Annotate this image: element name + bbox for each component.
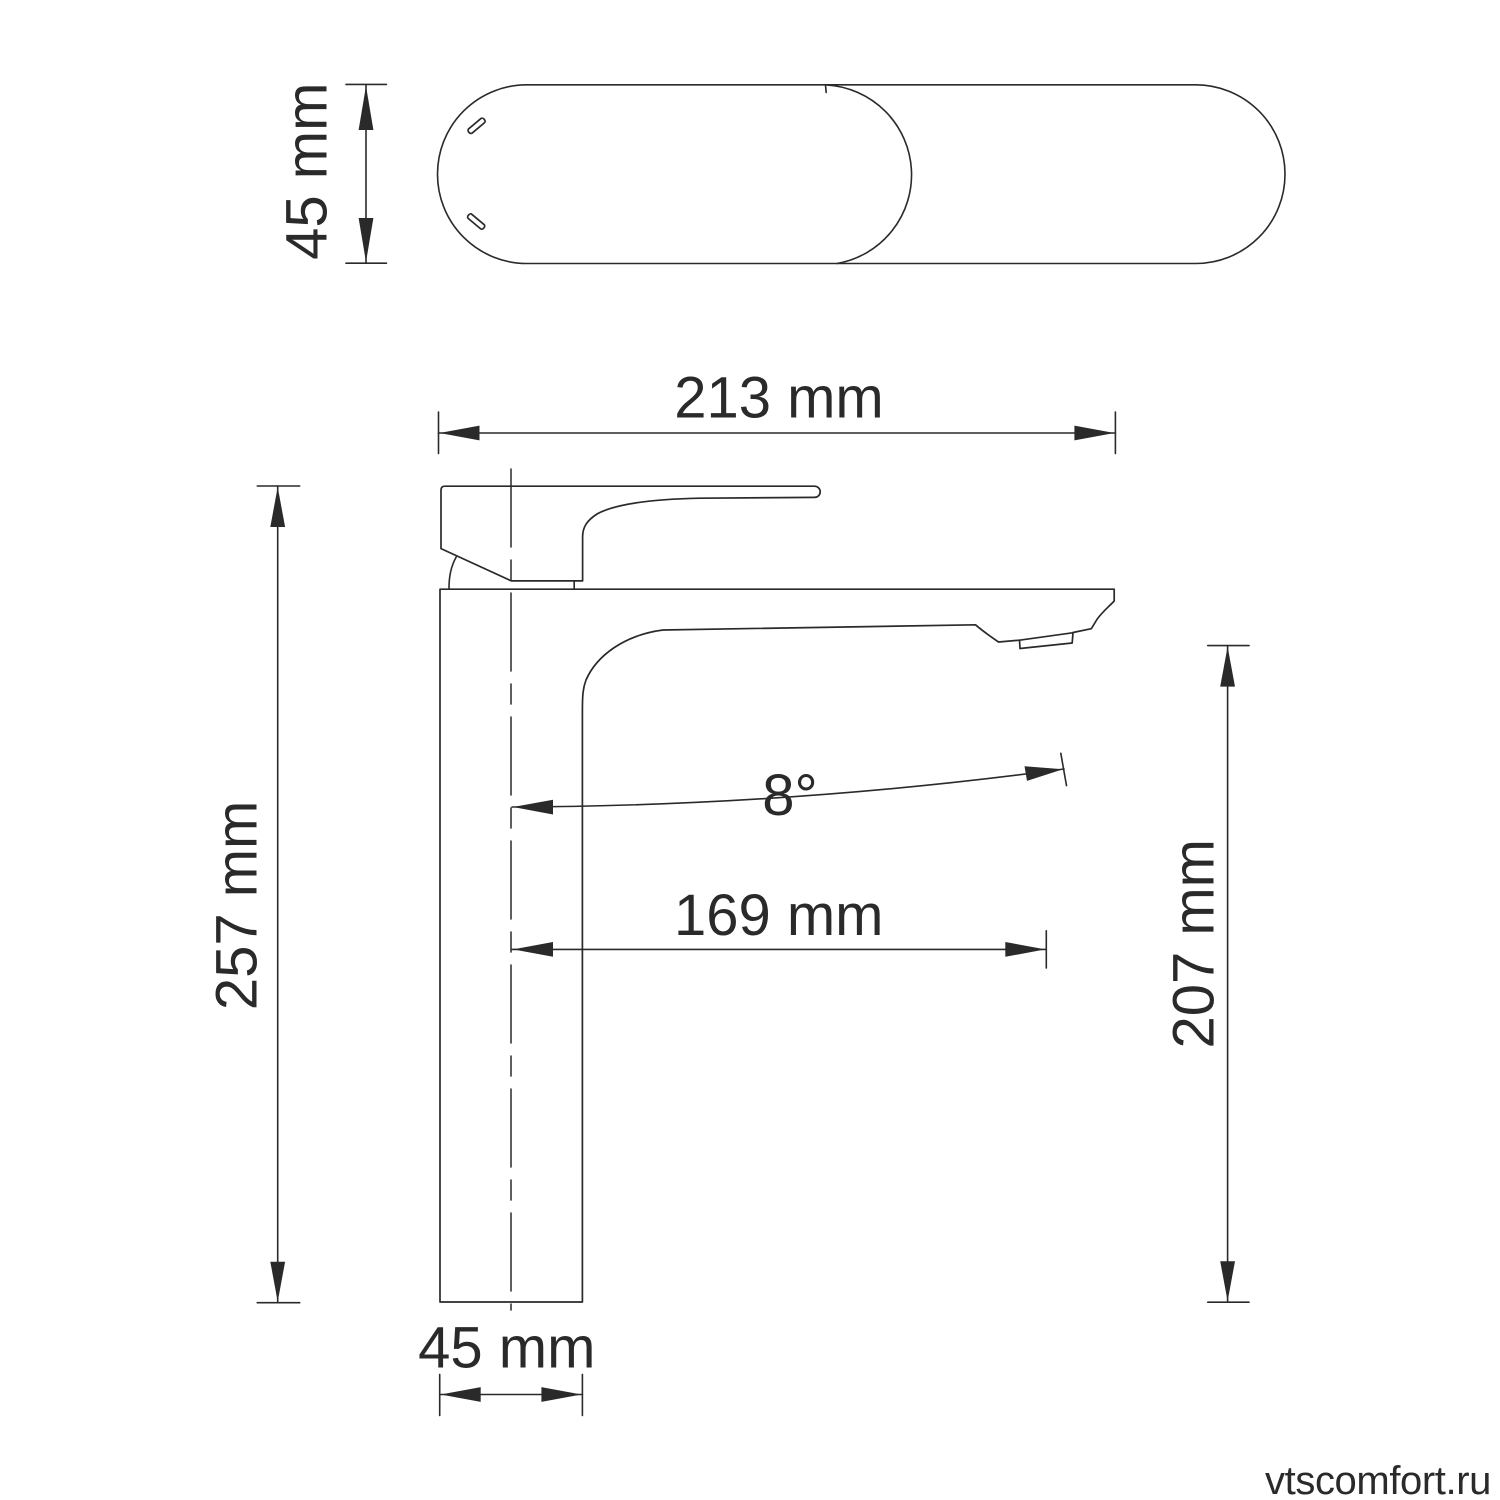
svg-text:8°: 8° xyxy=(762,763,817,828)
svg-text:45 mm: 45 mm xyxy=(274,83,339,260)
svg-text:257 mm: 257 mm xyxy=(205,801,270,1011)
svg-text:213 mm: 213 mm xyxy=(674,366,884,431)
svg-text:169 mm: 169 mm xyxy=(674,883,884,948)
svg-text:207 mm: 207 mm xyxy=(1161,839,1226,1049)
svg-text:45 mm: 45 mm xyxy=(418,1316,595,1381)
svg-text:vtscomfort.ru: vtscomfort.ru xyxy=(1265,1459,1491,1500)
